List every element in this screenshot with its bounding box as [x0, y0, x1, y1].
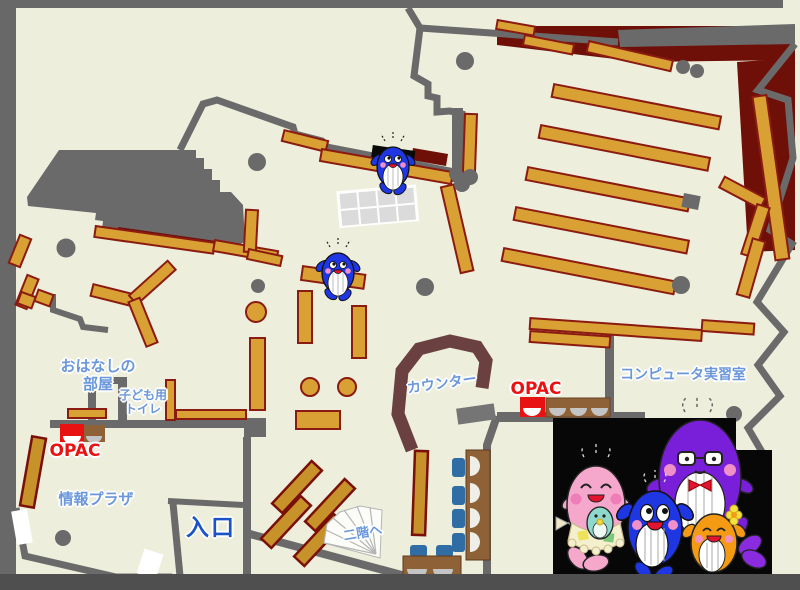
- opac-terminal-right: [520, 397, 610, 417]
- chair: [410, 545, 427, 557]
- baby-whale: [587, 507, 613, 539]
- floor-map-canvas: [0, 0, 800, 590]
- chair: [436, 545, 453, 557]
- chair: [452, 533, 465, 552]
- chair: [452, 486, 465, 505]
- chair: [452, 458, 465, 477]
- grid-table: [336, 184, 419, 228]
- opac-terminal-left: [60, 424, 105, 444]
- round-seat: [338, 378, 356, 396]
- chair: [452, 509, 465, 528]
- top-border: [0, 0, 783, 8]
- round-seat: [246, 302, 266, 322]
- column: [57, 239, 76, 258]
- left-border: [0, 0, 16, 590]
- bottom-border: [0, 574, 800, 590]
- library-floor-map: おはなしの 部屋 子ども用 トイレ OPAC 情報プラザ 入口 二階へ カウンタ…: [0, 0, 800, 590]
- round-seat: [301, 378, 319, 396]
